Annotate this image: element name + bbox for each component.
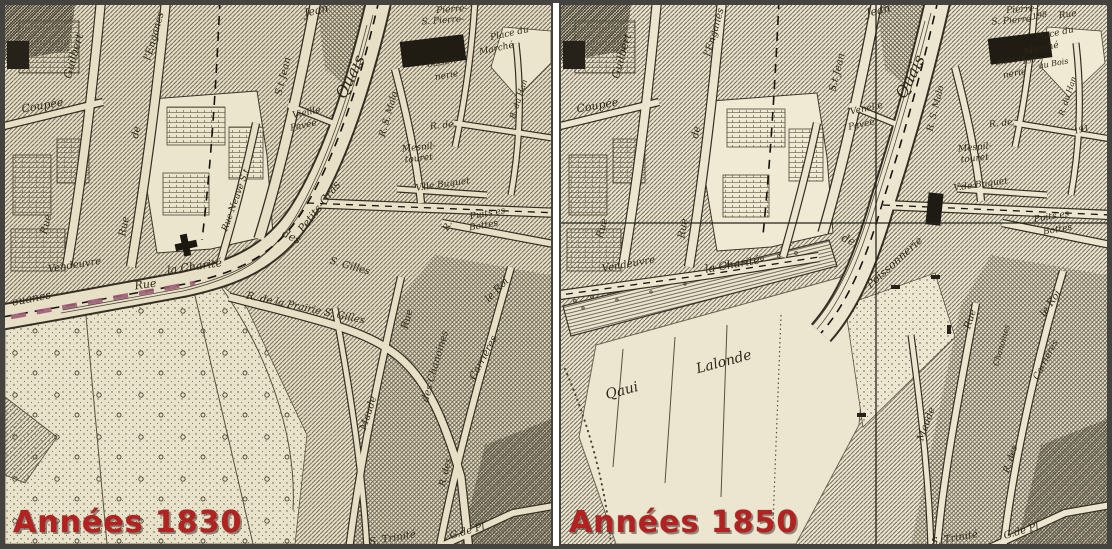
map-1850: GuilbertCoupéeRueRuedel'EnganesJeanS.t J… [561,5,1107,544]
map-panel-1830: GuilbertCoupéeRueRuedel'EnganesJeanS.t J… [3,3,553,546]
map-panel-1850: GuilbertCoupéeRueRuedel'EnganesJeanS.t J… [559,3,1109,546]
map-1830: GuilbertCoupéeRueRuedel'EnganesJeanS.t J… [5,5,551,544]
caption-1830: Années 1830 [13,505,242,540]
hospital-compound [703,93,833,251]
caption-1850: Années 1850 [569,505,798,540]
hospital-compound [143,91,273,253]
map-comparison: GuilbertCoupéeRueRuedel'EnganesJeanS.t J… [0,0,1112,549]
dark-block [563,41,585,69]
dark-block [7,41,29,69]
